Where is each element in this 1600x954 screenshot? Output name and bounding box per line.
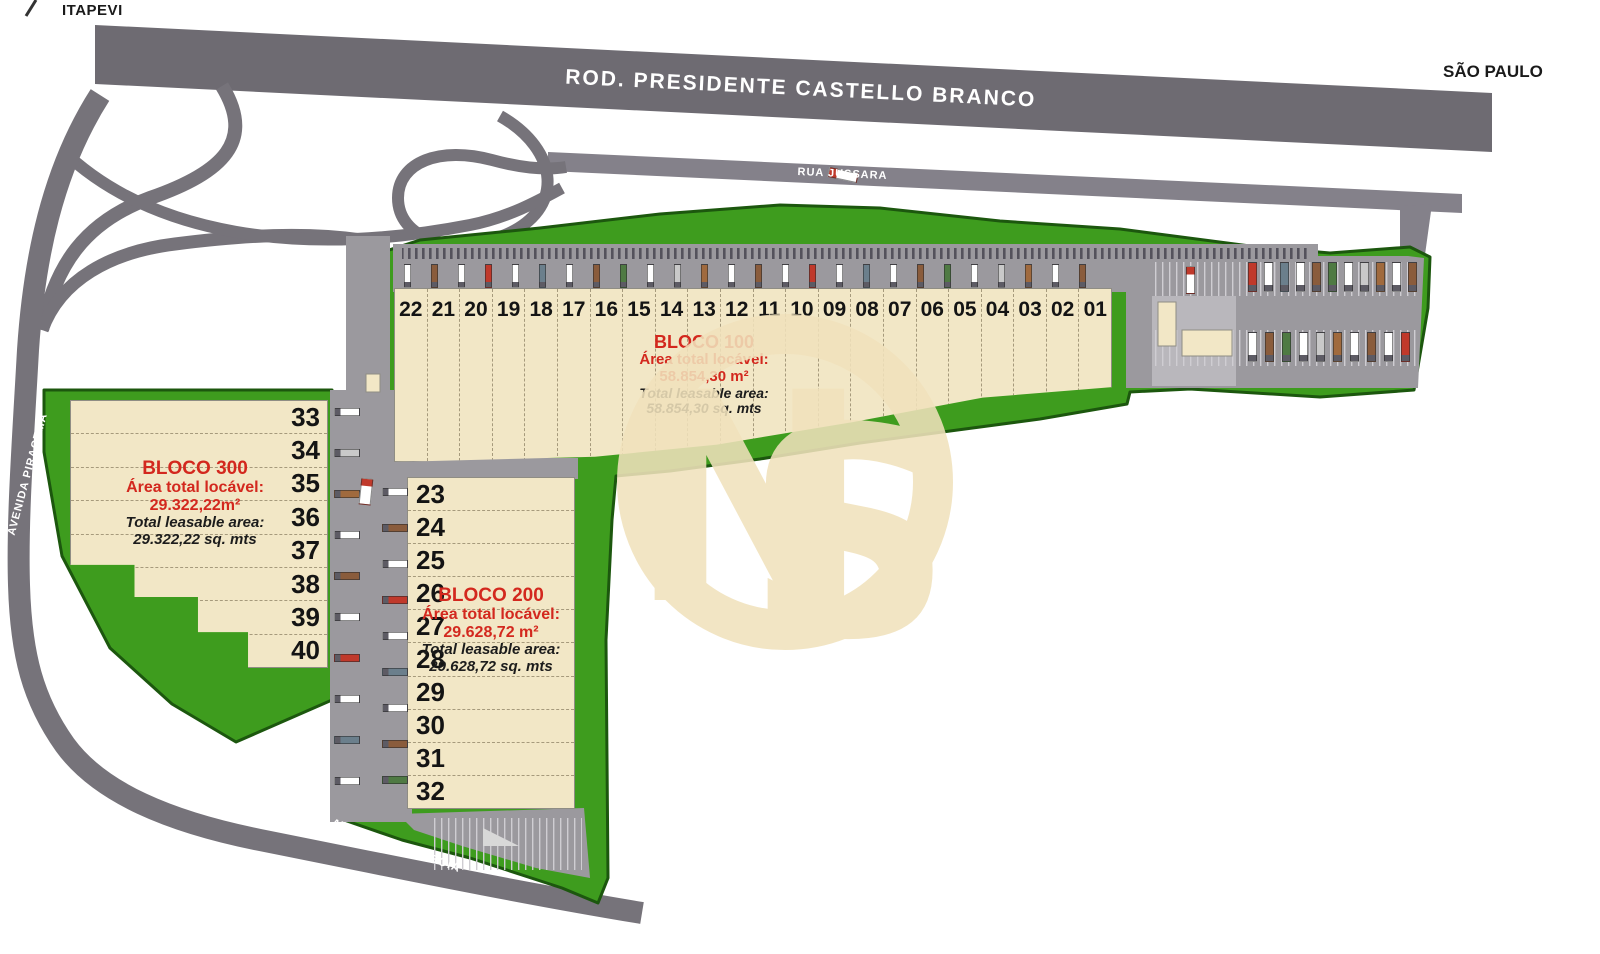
bloco300-area-value: 29.322,22m²: [105, 497, 285, 515]
unit-24: 24: [408, 511, 574, 544]
bloco300-name: BLOCO 300: [105, 458, 285, 479]
unit-30: 30: [408, 710, 574, 743]
bloco300-leasable-label: Total leasable area:: [105, 515, 285, 532]
bloco100-area-value: 58.854,30 m²: [619, 369, 789, 386]
unit-33: 33: [71, 401, 327, 434]
unit-21: 21: [428, 289, 461, 461]
bloco300-leasable-value: 29.322,22 sq. mts: [105, 532, 285, 549]
bloco200-leasable-value: 29.628,72 sq. mts: [412, 659, 570, 676]
bloco100-label: BLOCO 100 Área total locável: 58.854,30 …: [619, 332, 789, 417]
unit-29: 29: [408, 677, 574, 710]
unit-25: 25: [408, 544, 574, 577]
unit-18: 18: [525, 289, 558, 461]
gatehouse-1: [1158, 302, 1176, 346]
bloco100-leasable-value: 58.854,30 sq. mts: [619, 401, 789, 417]
bloco200-label: BLOCO 200 Área total locável: 29.628,72 …: [412, 585, 570, 676]
site-plan-canvas: 2221201918171615141312111009080706050403…: [0, 0, 1600, 954]
rua-jussara-road: [548, 152, 1462, 213]
north-mark: [26, 0, 36, 16]
city-label-itapevi: ITAPEVI: [62, 2, 123, 19]
gatehouse-2: [1182, 330, 1232, 356]
unit-22: 22: [395, 289, 428, 461]
unit-19: 19: [493, 289, 526, 461]
bloco100-leasable-label: Total leasable area:: [619, 386, 789, 402]
bloco200-area-label: Área total locável:: [412, 606, 570, 624]
bloco100-name: BLOCO 100: [619, 332, 789, 352]
unit-32: 32: [408, 776, 574, 808]
unit-31: 31: [408, 743, 574, 776]
bloco100-area-label: Área total locável:: [619, 352, 789, 369]
unit-17: 17: [558, 289, 591, 461]
bloco300-label: BLOCO 300 Área total locável: 29.322,22m…: [105, 458, 285, 549]
yard-stalls-row-1: [1150, 262, 1418, 296]
bloco200-area-value: 29.628,72 m²: [412, 624, 570, 642]
unit-20: 20: [460, 289, 493, 461]
city-label-sao-paulo: SÃO PAULO: [1443, 62, 1543, 82]
bloco200-name: BLOCO 200: [412, 585, 570, 606]
unit-23: 23: [408, 478, 574, 511]
gatehouse-3: [366, 374, 380, 392]
bloco300-area-label: Área total locável:: [105, 479, 285, 497]
car-row-top: [402, 246, 1308, 259]
bloco200-leasable-label: Total leasable area:: [412, 642, 570, 659]
interchange-ramp-2: [42, 235, 362, 330]
